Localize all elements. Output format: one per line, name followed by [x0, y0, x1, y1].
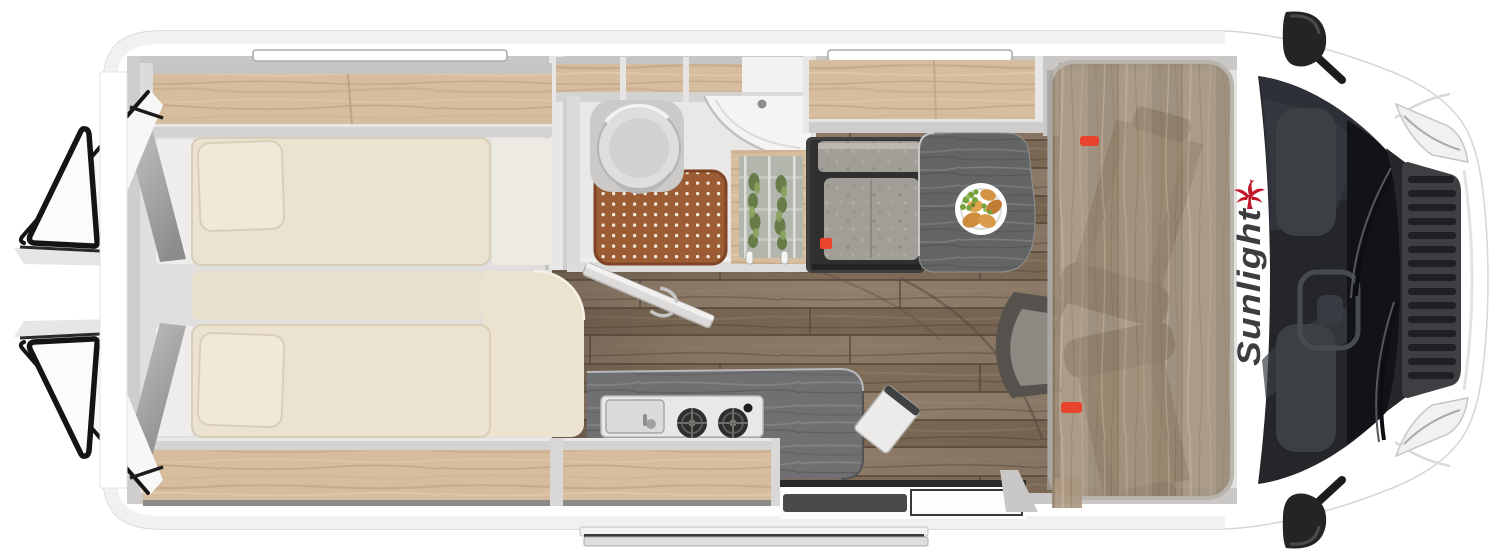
- svg-text:Sunlight: Sunlight: [1231, 208, 1267, 366]
